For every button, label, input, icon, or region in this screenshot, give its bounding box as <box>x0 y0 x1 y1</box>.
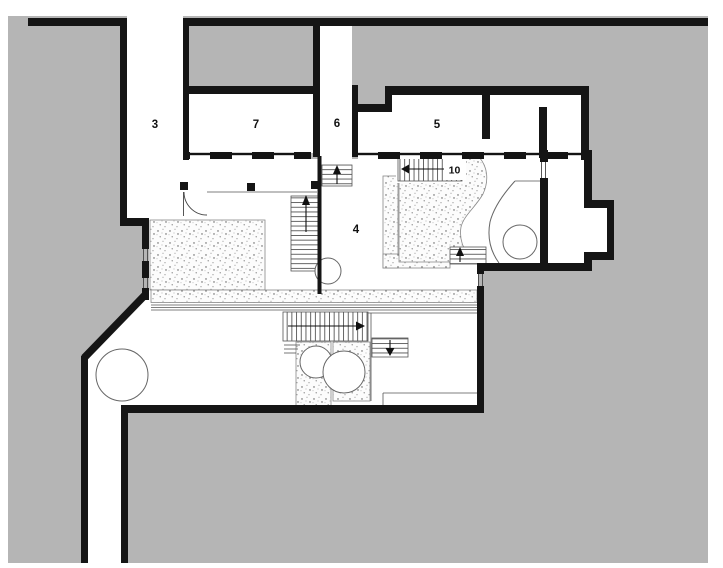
wall-segment <box>81 356 88 563</box>
wall-segment <box>28 18 127 26</box>
wall-segment <box>183 18 708 26</box>
wall-segment <box>482 263 592 271</box>
room-label-6: 6 <box>334 118 340 130</box>
corridor-6-area <box>320 25 352 161</box>
wall-segment <box>482 86 490 139</box>
wall-segment <box>142 261 149 278</box>
window-wall-room7 <box>189 152 311 159</box>
stair-corridor6-up <box>322 165 352 186</box>
wall-segment <box>540 150 548 162</box>
column-circle <box>503 225 537 259</box>
floor-plan-drawing: 10 <box>0 0 723 568</box>
wall-segment <box>313 18 320 157</box>
column-marker <box>180 182 188 190</box>
stair-main-up <box>291 195 319 271</box>
wall-segment <box>607 200 614 260</box>
room-label-5: 5 <box>434 119 441 131</box>
wall-segment <box>477 286 484 413</box>
wall-thin-partition <box>318 156 322 294</box>
room-label-4: 4 <box>353 224 360 236</box>
wall-segment <box>352 85 358 157</box>
stair-mid-up <box>450 247 486 264</box>
terrazzo-band <box>151 290 477 303</box>
window-walls <box>189 152 581 159</box>
basement-floor-plan-page: 10 <box>0 0 723 568</box>
column-marker <box>311 181 319 189</box>
room-7-area <box>188 92 313 153</box>
wall-segment <box>584 150 592 207</box>
wall-segment <box>183 86 320 94</box>
stair-10: 10 <box>396 155 466 183</box>
tree-icon <box>323 351 365 393</box>
tree-icon <box>96 349 148 401</box>
stair-label-10: 10 <box>449 165 461 177</box>
east-room-notch-area <box>584 205 609 255</box>
terrazzo-court <box>150 220 265 290</box>
stair-terrace-down <box>372 338 408 357</box>
wall-segment <box>121 405 128 563</box>
wall-segment <box>121 405 484 413</box>
wall-segment <box>581 86 589 160</box>
column-marker <box>247 183 255 191</box>
wall-segment <box>120 18 127 222</box>
wall-segment <box>142 220 149 249</box>
room-label-3: 3 <box>152 119 158 131</box>
corridor-3-area <box>127 0 183 219</box>
wall-segment <box>540 178 548 268</box>
room-label-7: 7 <box>253 119 259 131</box>
east-room-area <box>552 159 586 266</box>
